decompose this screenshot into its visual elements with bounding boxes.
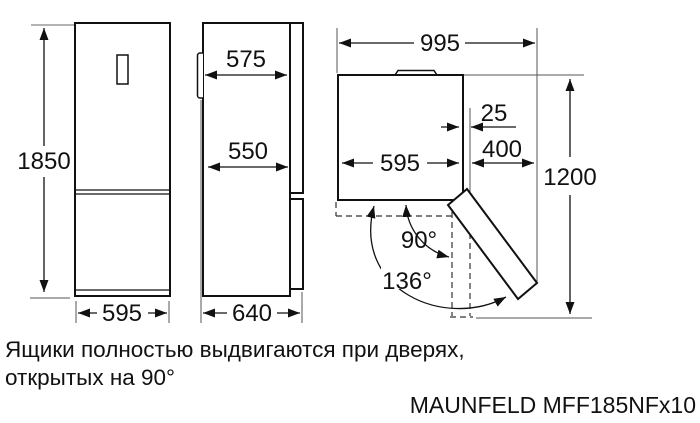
door-display-panel [117,55,128,84]
top-view: 995 595 25 400 1200 90° 136° [336,28,597,318]
side-gap-label: 25 [481,100,508,127]
side-view: 575 550 640 [198,23,304,327]
dim-front-width: 595 [76,300,169,327]
side-upper-door [290,23,303,193]
dim-front-height: 1850 [17,25,74,298]
dim-top-total-width: 995 [339,30,535,57]
dim-door-clearance: 400 [472,136,534,163]
model-name: MAUNFELD MFF185NFx10 [410,392,696,418]
front-width-label: 595 [102,300,142,327]
door-swing-guides [336,202,473,317]
front-height-label: 1850 [17,148,70,175]
note-line-2: открытых на 90° [5,365,175,390]
diagram-canvas: 1850 595 575 550 [0,0,700,423]
side-door-depth-label: 575 [226,46,266,73]
side-total-depth-label: 640 [232,300,272,327]
open-door [448,189,537,299]
required-depth-label: 1200 [543,164,596,191]
side-body-depth-label: 550 [228,138,268,165]
top-cabinet-outline [338,75,463,200]
top-total-width-label: 995 [420,30,460,57]
rear-spacer-bump [198,53,204,98]
top-width-label: 595 [380,150,420,177]
angle-90-label: 90° [401,227,437,254]
side-lower-door [290,199,303,289]
footer: Ящики полностью выдвигаются при дверях, … [5,337,696,418]
note-line-1: Ящики полностью выдвигаются при дверях, [5,337,465,362]
door-clearance-label: 400 [482,136,522,163]
dim-side-total-depth: 640 [203,292,302,327]
refrigerator-dimension-diagram: 1850 595 575 550 [0,0,700,423]
angle-136-label: 136° [382,268,432,295]
dim-required-depth: 1200 [543,79,596,314]
front-view: 1850 595 [17,23,170,327]
